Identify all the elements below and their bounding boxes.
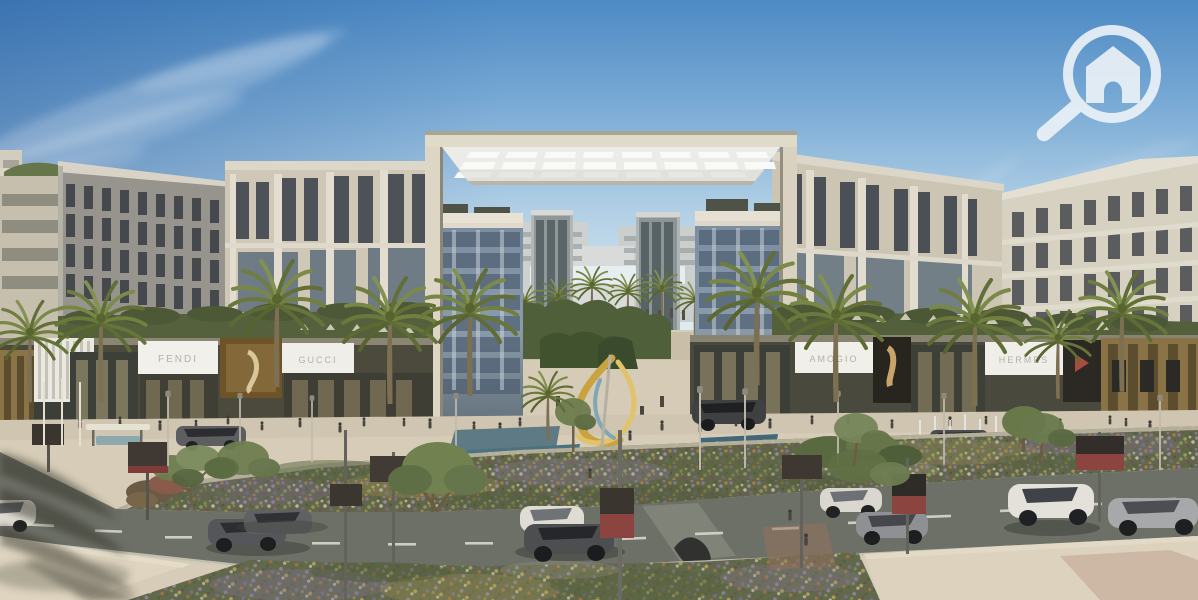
svg-text:FENDI: FENDI [158,354,198,365]
svg-text:GUCCI: GUCCI [299,355,338,365]
svg-text:HERMES: HERMES [999,355,1050,365]
